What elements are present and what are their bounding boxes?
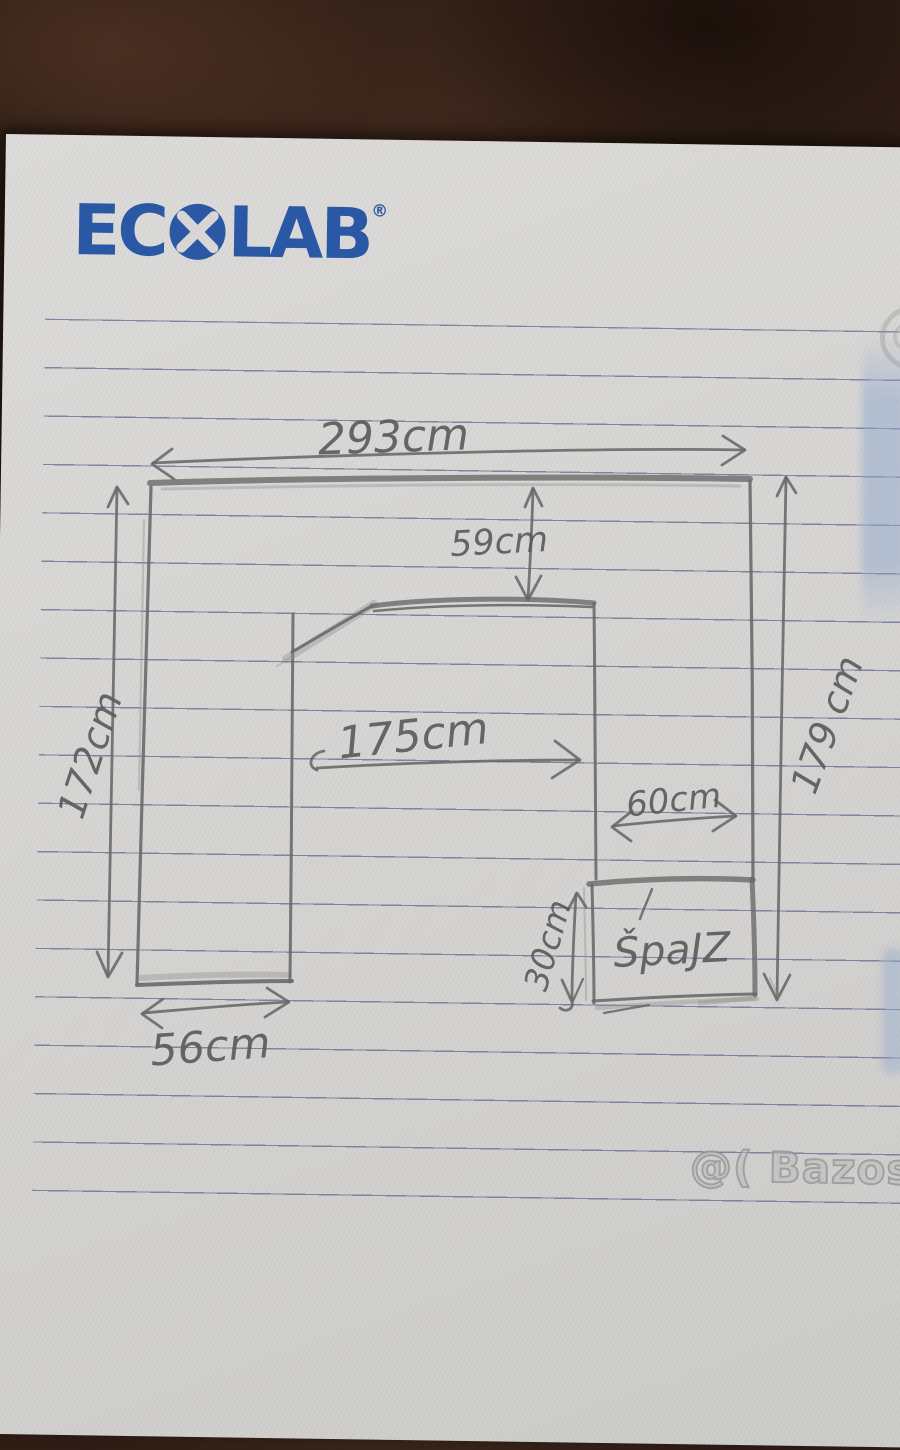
photo-of-hand-drawn-floor-plan: { "brand": { "name": "ECOLAB", "register… [0, 0, 900, 1200]
ecolab-globe-icon [168, 202, 227, 261]
registered-mark: ® [371, 203, 388, 220]
logo-text-ec: EC [72, 199, 166, 262]
blue-reflection-upper [862, 336, 900, 624]
bazos-watermark: @( Bazos.cz [690, 1141, 900, 1195]
logo-text-lab: LAB [227, 201, 371, 265]
ecolab-logo: EC LAB ® [72, 199, 388, 266]
blue-reflection-lower [882, 948, 900, 1074]
notepad-paper: EC LAB ® [0, 134, 900, 1450]
ruled-lines [32, 319, 900, 1216]
